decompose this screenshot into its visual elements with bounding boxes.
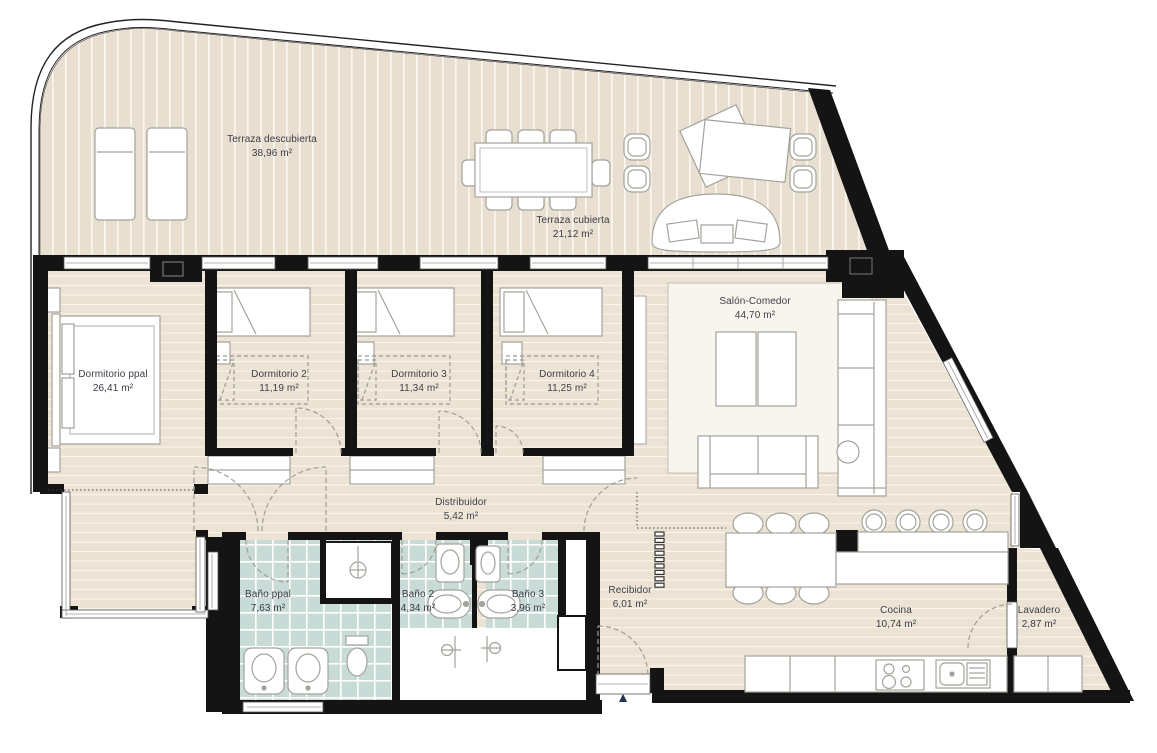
room-label-recibidor: Recibidor 6,01 m² — [608, 584, 651, 612]
entrance-marker: ▲ — [616, 690, 630, 704]
sink-bano2 — [436, 544, 464, 582]
floorplan-page: Terraza descubierta 38,96 m² Terraza cub… — [0, 0, 1157, 753]
room-label-salon-comedor: Salón-Comedor 44,70 m² — [719, 295, 790, 323]
coffee-table — [716, 332, 756, 406]
room-label-dormitorio-4: Dormitorio 4 11,25 m² — [539, 368, 595, 396]
room-label-dormitorio-3: Dormitorio 3 11,34 m² — [391, 368, 447, 396]
room-label-bano-3: Baño 3 3,96 m² — [511, 588, 546, 616]
room-label-lavadero: Lavadero 2,87 m² — [1018, 604, 1061, 632]
room-label-bano-2: Baño 2 4,34 m² — [401, 588, 436, 616]
room-label-dormitorio-2: Dormitorio 2 11,19 m² — [251, 368, 307, 396]
toilet — [346, 636, 368, 676]
room-label-terraza-cubierta: Terraza cubierta 21,12 m² — [536, 214, 609, 242]
wardrobes — [208, 456, 625, 484]
coffee-table — [758, 332, 796, 406]
room-label-terraza-descubierta: Terraza descubierta 38,96 m² — [227, 133, 317, 161]
kitchen-dining-table — [726, 513, 836, 604]
duct — [558, 616, 586, 670]
hall-cabinet — [655, 532, 664, 587]
room-label-distribuidor: Distribuidor 5,42 m² — [435, 496, 487, 524]
sofa-right — [838, 300, 886, 496]
room-label-dormitorio-ppal: Dormitorio ppal 26,41 m² — [78, 368, 147, 396]
sofa-bottom — [698, 436, 818, 488]
kitchen-counter — [745, 656, 1082, 692]
sink-bano3 — [476, 546, 500, 582]
tv-bench — [632, 296, 646, 444]
room-label-bano-ppal: Baño ppal 7,63 m² — [245, 588, 291, 616]
side-table — [837, 441, 859, 463]
room-label-cocina: Cocina 10,74 m² — [876, 604, 916, 632]
